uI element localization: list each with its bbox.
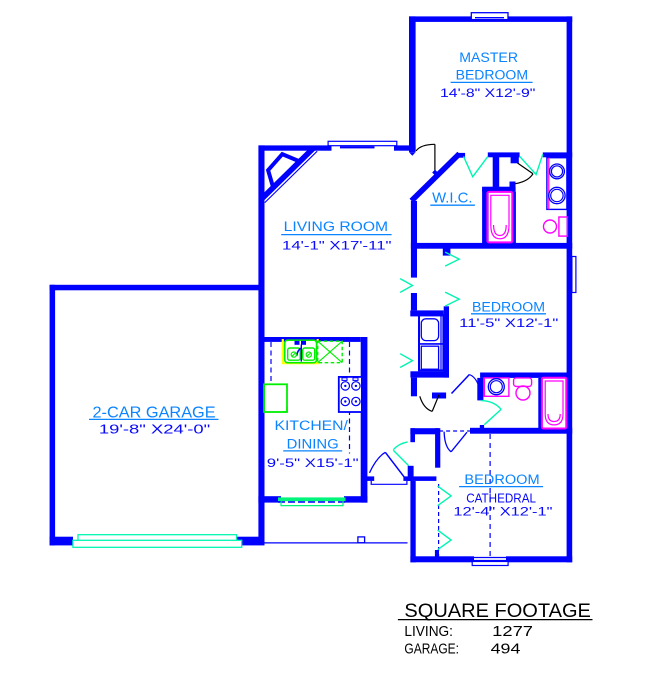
svg-text:12'-4" X12'-1": 12'-4" X12'-1"	[453, 504, 552, 518]
svg-text:GARAGE:: GARAGE:	[404, 641, 459, 658]
svg-text:SQUARE FOOTAGE: SQUARE FOOTAGE	[404, 600, 591, 622]
svg-text:19'-8" X24'-0": 19'-8" X24'-0"	[99, 422, 210, 436]
svg-text:9'-5" X15'-1": 9'-5" X15'-1"	[267, 456, 359, 470]
svg-text:14'-1" X17'-11": 14'-1" X17'-11"	[282, 239, 392, 253]
svg-text:14'-8" X12'-9": 14'-8" X12'-9"	[440, 86, 535, 100]
svg-text:BEDROOM: BEDROOM	[456, 67, 528, 83]
svg-text:BEDROOM: BEDROOM	[464, 472, 539, 488]
svg-text:LIVING ROOM: LIVING ROOM	[284, 219, 388, 235]
svg-text:11'-5" X12'-1": 11'-5" X12'-1"	[459, 316, 558, 330]
svg-text:1277: 1277	[492, 623, 533, 640]
svg-text:494: 494	[491, 641, 521, 658]
svg-text:CATHEDRAL: CATHEDRAL	[466, 492, 536, 506]
svg-text:KITCHEN/: KITCHEN/	[275, 418, 348, 434]
svg-text:DINING: DINING	[287, 437, 339, 453]
svg-text:MASTER: MASTER	[459, 50, 518, 66]
svg-text:W.I.C.: W.I.C.	[432, 191, 472, 207]
svg-text:LIVING:: LIVING:	[404, 623, 453, 640]
